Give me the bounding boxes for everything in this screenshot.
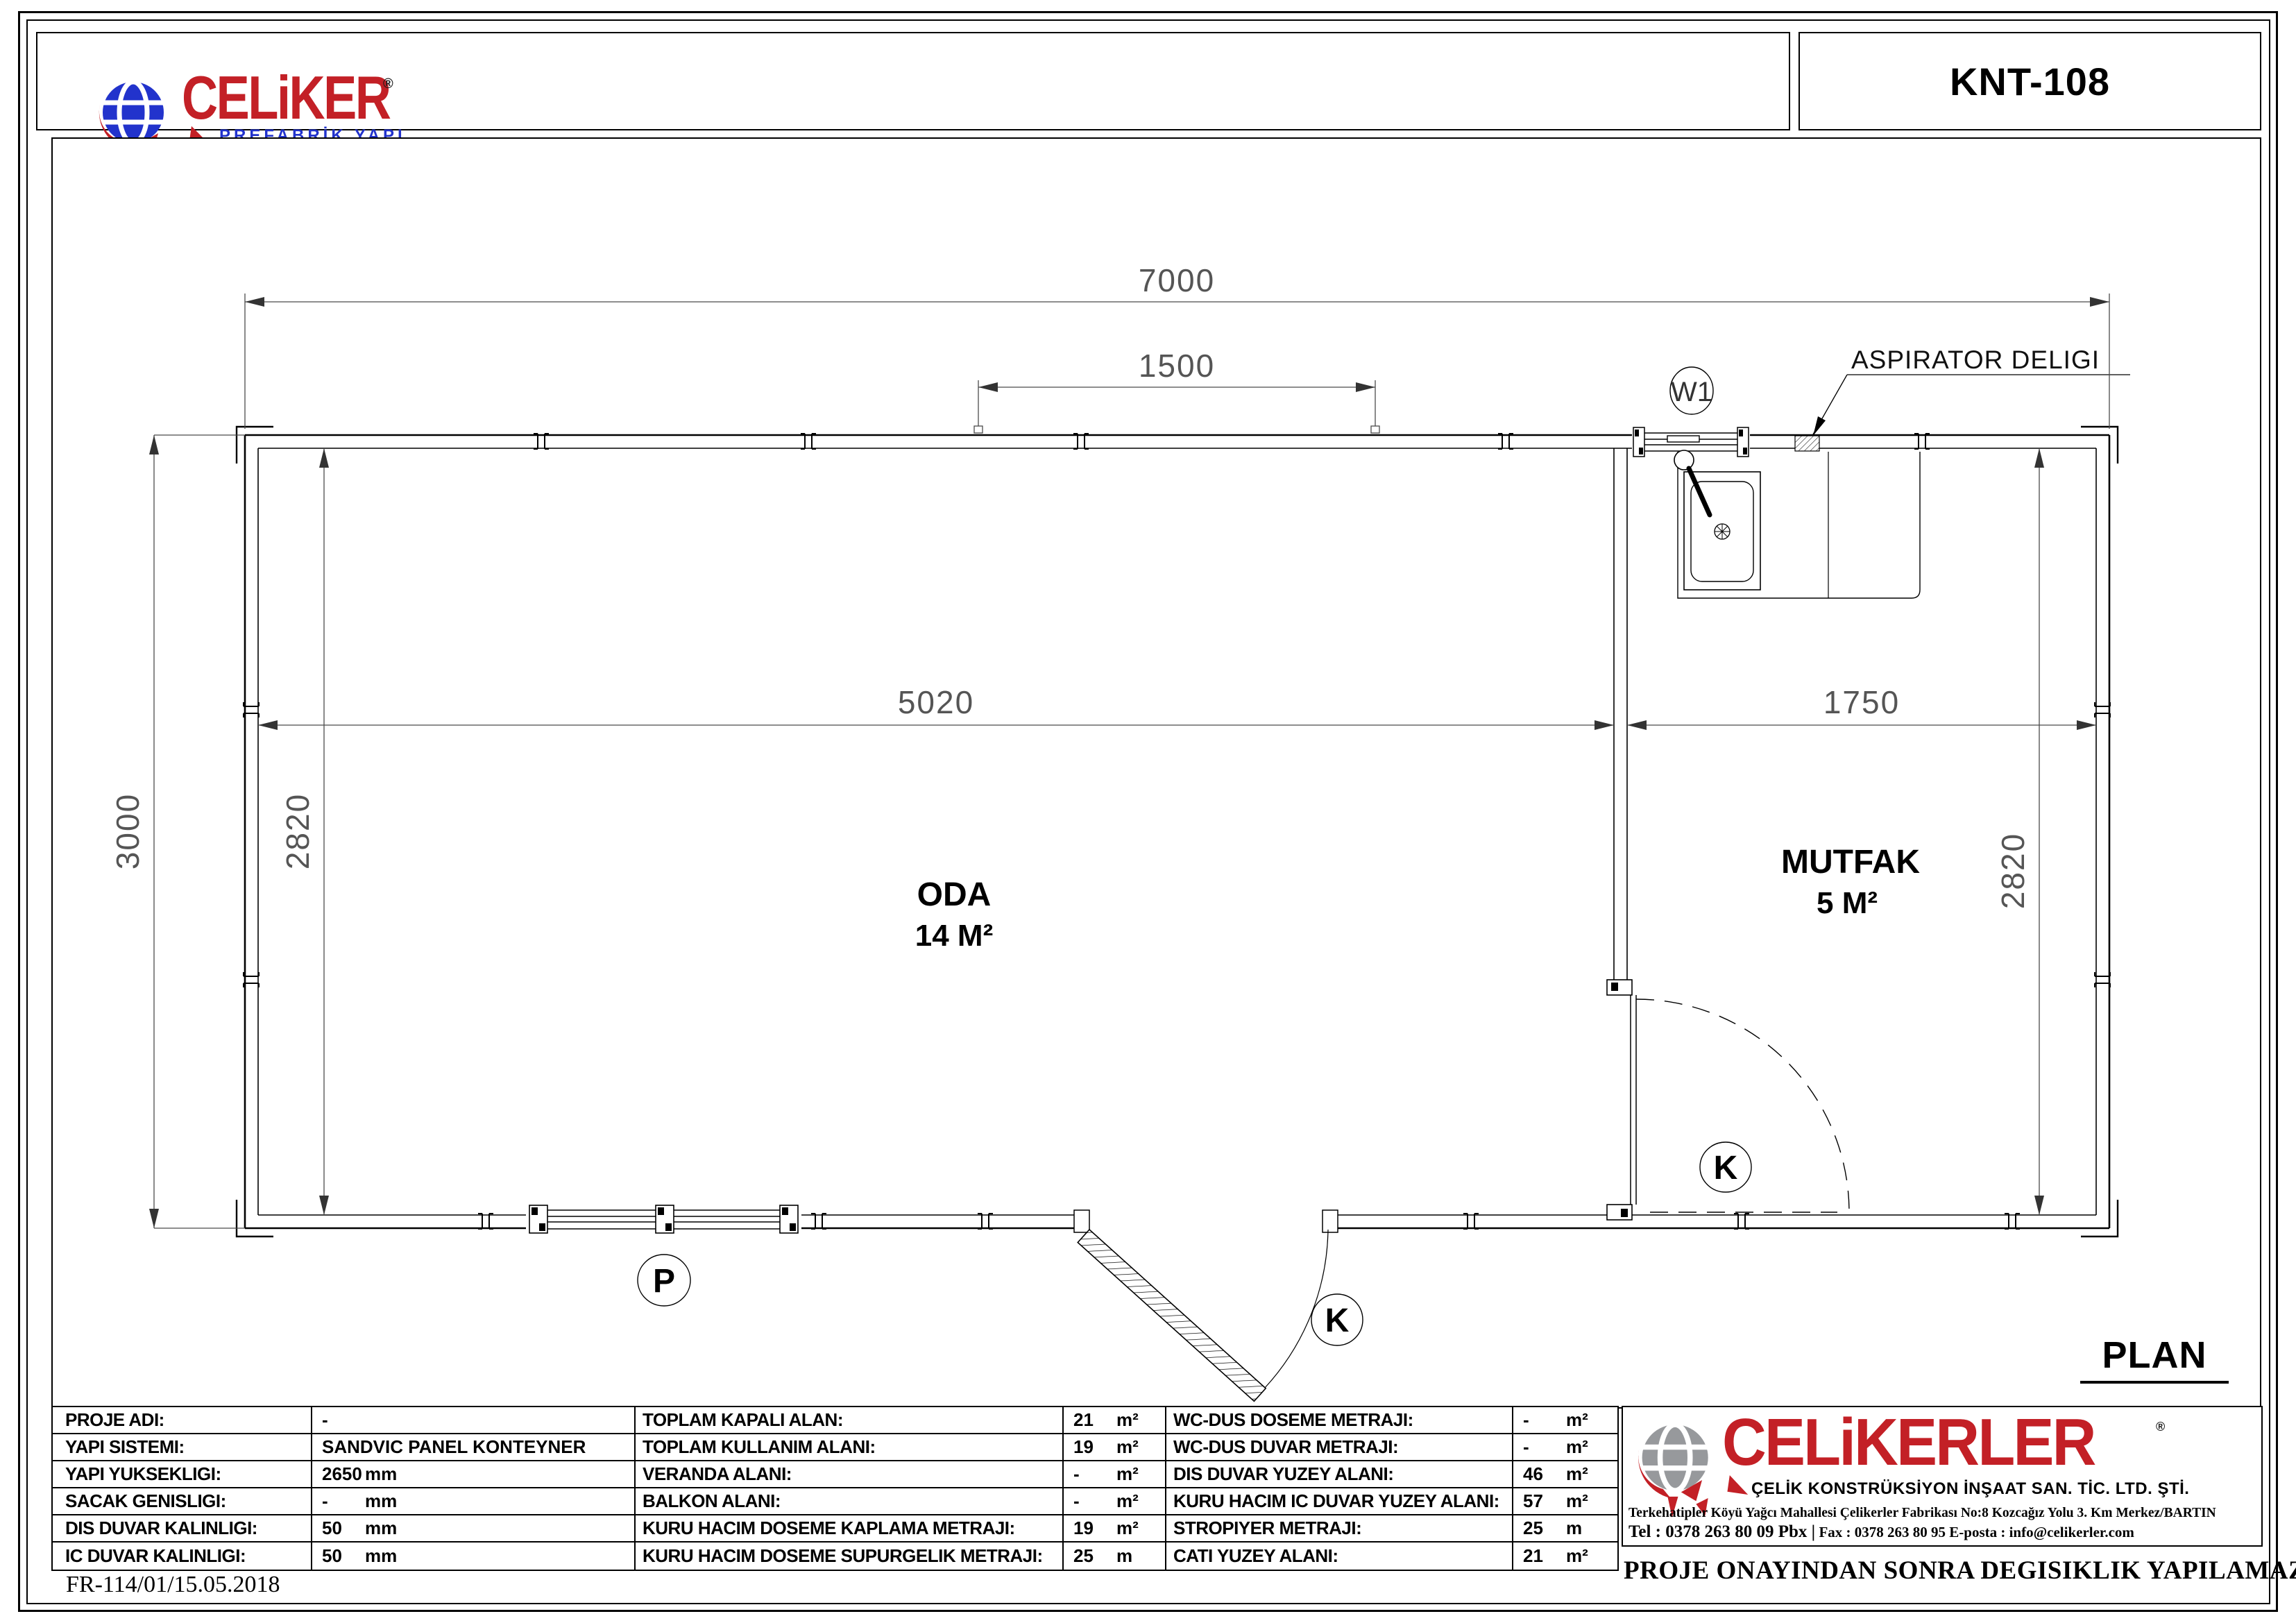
mark-k-exterior: K [1311,1294,1363,1345]
table-areas: TOPLAM KAPALI ALAN:21m² TOPLAM KULLANIM … [634,1406,1168,1571]
row-label: BALKON ALANI: [636,1488,1064,1514]
form-code: FR-114/01/15.05.2018 [66,1572,280,1598]
row-unit: mm [365,1545,397,1567]
row-unit: m² [1116,1490,1139,1512]
row-value: - [312,1490,365,1512]
mark-p-label: P [653,1263,675,1300]
dim-label-2820-right: 2820 [1995,833,2031,909]
row-label: KURU HACIM IC DUVAR YUZEY ALANI: [1166,1488,1513,1514]
mark-w1-label: W1 [1671,377,1712,407]
approval-note: PROJE ONAYINDAN SONRA DEGISIKLIK YAPILAM… [1624,1556,2262,1586]
table-row: STROPIYER METRAJI:25m [1166,1515,1617,1543]
row-label: KURU HACIM DOSEME SUPURGELIK METRAJI: [636,1543,1064,1570]
company-swoosh [1727,1475,1750,1495]
row-unit: m² [1566,1409,1588,1431]
dim-label-2820-left: 2820 [280,793,316,869]
row-value: 19 [1064,1518,1116,1539]
row-unit: m [1566,1518,1582,1539]
row-label: TOPLAM KAPALI ALAN: [636,1407,1064,1433]
row-unit: m² [1566,1436,1588,1458]
row-label: YAPI YUKSEKLIGI: [53,1461,312,1487]
row-label: CATI YUZEY ALANI: [1166,1543,1513,1570]
row-unit: m² [1116,1436,1139,1458]
plan-title: PLAN [2080,1334,2229,1384]
company-fax-email: Fax : 0378 263 80 95 E-posta : info@celi… [1815,1524,2134,1540]
row-unit: m² [1566,1463,1588,1485]
table-row: IC DUVAR KALINLIGI:50mm [53,1543,636,1570]
aspirator-hole [1795,375,2130,451]
kitchen-sink [1684,472,1760,590]
row-unit: mm [365,1490,397,1512]
dim-room-widths [258,720,2096,730]
row-label: IC DUVAR KALINLIGI: [53,1543,312,1570]
table-surfaces: WC-DUS DOSEME METRAJI:-m² WC-DUS DUVAR M… [1165,1406,1619,1571]
row-unit: m² [1566,1545,1588,1567]
row-value: 2650 [312,1463,365,1485]
row-label: DIS DUVAR YUZEY ALANI: [1166,1461,1513,1487]
row-value: SANDVIC PANEL KONTEYNER [312,1436,586,1458]
row-label: DIS DUVAR KALINLIGI: [53,1515,312,1541]
table-row: YAPI YUKSEKLIGI:2650mm [53,1461,636,1488]
row-value: 46 [1513,1463,1566,1485]
row-unit: m² [1116,1518,1139,1539]
company-tel: Tel : 0378 263 80 09 Pbx | [1629,1522,1815,1541]
row-label: PROJE ADI: [53,1407,312,1433]
row-label: VERANDA ALANI: [636,1461,1064,1487]
table-row: TOPLAM KULLANIM ALANI:19m² [636,1434,1166,1461]
table-project-info: PROJE ADI:- YAPI SISTEMI:SANDVIC PANEL K… [51,1406,637,1571]
dim-mutfak-depth [2034,448,2044,1215]
table-row: PROJE ADI:- [53,1407,636,1434]
exterior-door-k [1074,1210,1338,1401]
company-registered-mark: ® [2156,1420,2165,1434]
row-value: 57 [1513,1490,1566,1512]
mark-k-interior: K [1700,1142,1751,1192]
dim-label-1750: 1750 [1823,684,1900,720]
row-unit: m² [1116,1463,1139,1485]
company-address: Terkehatipler Köyü Yağcı Mahallesi Çelik… [1629,1506,2216,1521]
table-row: DIS DUVAR YUZEY ALANI:46m² [1166,1461,1617,1488]
row-unit: m [1116,1545,1132,1567]
row-label: SACAK GENISLIGI: [53,1488,312,1514]
row-label: KURU HACIM DOSEME KAPLAMA METRAJI: [636,1515,1064,1541]
row-unit: mm [365,1463,397,1485]
row-value: - [1064,1490,1116,1512]
aspirator-label: ASPIRATOR DELIGI [1851,346,2100,374]
partition-wall [1607,448,1632,1220]
table-row: BALKON ALANI:-m² [636,1488,1166,1515]
row-value: 21 [1513,1545,1566,1567]
room-area-oda: 14 M² [915,919,993,953]
table-row: CATI YUZEY ALANI:21m² [1166,1543,1617,1570]
table-row: VERANDA ALANI:-m² [636,1461,1166,1488]
row-unit: m² [1566,1490,1588,1512]
mark-p: P [638,1255,690,1306]
row-label: WC-DUS DUVAR METRAJI: [1166,1434,1513,1460]
dim-label-1500: 1500 [1139,348,1215,384]
table-row: DIS DUVAR KALINLIGI:50mm [53,1515,636,1543]
mark-k-interior-label: K [1714,1150,1738,1187]
drawing-sheet: CELiKER ® PREFABRİK YAPI KNT-108 [0,0,2296,1623]
company-name: CELiKERLER [1722,1404,2095,1481]
row-value: 50 [312,1545,365,1567]
row-label: YAPI SISTEMI: [53,1434,312,1460]
table-row: SACAK GENISLIGI:-mm [53,1488,636,1515]
row-value: 19 [1064,1436,1116,1458]
panel-joint-icons [244,434,2110,1229]
corner-posts [237,427,2118,1237]
room-label-oda: ODA [917,876,992,913]
row-value: - [312,1409,365,1431]
room-area-mutfak: 5 M² [1817,886,1878,920]
row-label: STROPIYER METRAJI: [1166,1515,1513,1541]
row-value: 21 [1064,1409,1116,1431]
row-value: - [1064,1463,1116,1485]
row-value: 50 [312,1518,365,1539]
row-value: - [1513,1436,1566,1458]
row-value: 25 [1513,1518,1566,1539]
company-phone: Tel : 0378 263 80 09 Pbx | Fax : 0378 26… [1629,1522,2134,1542]
table-row: WC-DUS DUVAR METRAJI:-m² [1166,1434,1617,1461]
company-title-block: CELiKERLER ® ÇELİK KONSTRÜKSİYON İNŞAAT … [1622,1406,2263,1547]
table-row: KURU HACIM DOSEME SUPURGELIK METRAJI:25m [636,1543,1166,1570]
table-row: TOPLAM KAPALI ALAN:21m² [636,1407,1166,1434]
table-row: WC-DUS DOSEME METRAJI:-m² [1166,1407,1617,1434]
dim-label-3000: 3000 [110,793,146,869]
row-label: WC-DUS DOSEME METRAJI: [1166,1407,1513,1433]
dim-oda-depth [319,448,329,1215]
mark-w1: W1 [1670,367,1713,414]
kitchen-counter [1678,452,1920,598]
window-p [526,1205,801,1233]
row-label: TOPLAM KULLANIM ALANI: [636,1434,1064,1460]
mark-k-exterior-label: K [1325,1302,1350,1339]
company-subtitle: ÇELİK KONSTRÜKSİYON İNŞAAT SAN. TİC. LTD… [1751,1479,2189,1499]
table-row: KURU HACIM DOSEME KAPLAMA METRAJI:19m² [636,1515,1166,1543]
room-label-mutfak: MUTFAK [1781,844,1920,881]
dim-label-7000: 7000 [1139,262,1215,298]
exterior-walls [245,435,2109,1228]
floor-plan-drawing: ASPIRATOR DELIGI 7000 1500 5 [0,0,2296,1623]
table-row: KURU HACIM IC DUVAR YUZEY ALANI:57m² [1166,1488,1617,1515]
table-row: YAPI SISTEMI:SANDVIC PANEL KONTEYNER [53,1434,636,1461]
row-unit: mm [365,1518,397,1539]
dim-total-depth [149,435,245,1228]
dim-label-5020: 5020 [898,684,974,720]
row-value: - [1513,1409,1566,1431]
dim-top-opening [974,380,1379,433]
row-unit: m² [1116,1409,1139,1431]
row-value: 25 [1064,1545,1116,1567]
